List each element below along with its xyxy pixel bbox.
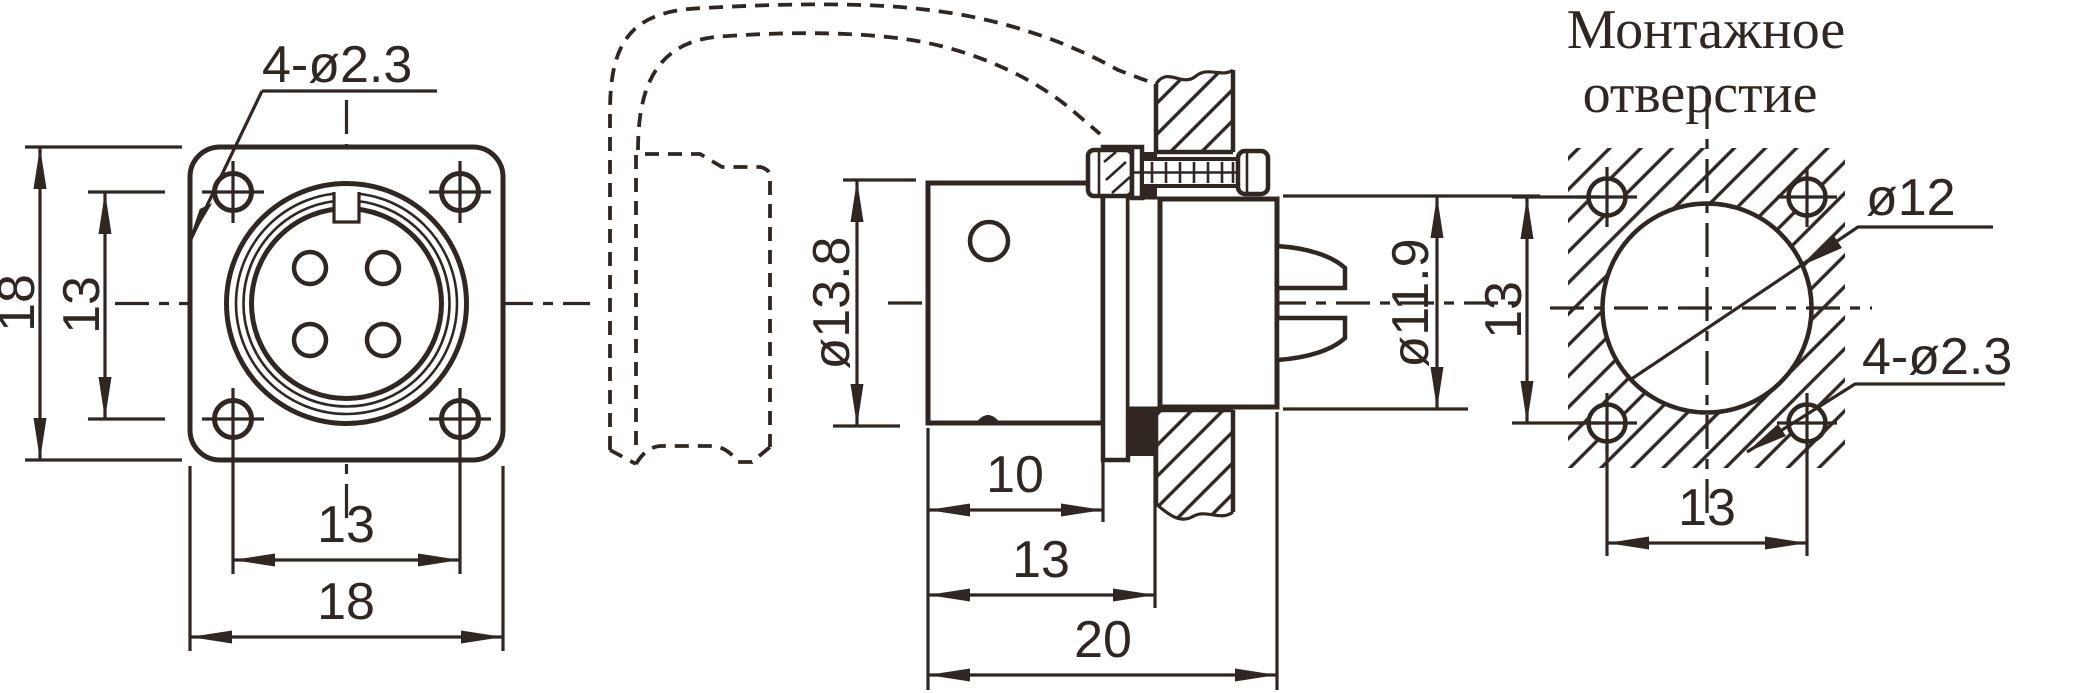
side-rear-body: [1160, 199, 1277, 407]
dim-label: 13: [317, 496, 375, 554]
front-holes-callout-label: 4-ø2.3: [262, 36, 412, 94]
dim-label: 20: [1074, 611, 1132, 669]
panel-hole-callout-label: ø12: [1866, 169, 1956, 227]
dim-label: 10: [986, 446, 1044, 504]
front-pin-1: [294, 252, 326, 284]
dim-label: 13: [1475, 281, 1533, 339]
side-finger-lower: [1277, 318, 1345, 360]
side-vent-hole: [970, 222, 1008, 260]
panel-section-bottom: [1156, 410, 1233, 519]
dim-label: 18: [0, 274, 46, 332]
dim-label: 13: [1012, 531, 1070, 589]
dim-label: ø13.8: [803, 237, 861, 370]
front-pin-4: [367, 324, 399, 356]
dim-label: 13: [53, 276, 111, 334]
side-finger-upper: [1277, 246, 1345, 288]
mounting-hole-view: Монтажное отверстие 13: [1475, 0, 2012, 556]
dim-label: ø11.9: [1382, 238, 1440, 367]
front-pin-2: [367, 252, 399, 284]
mounting-view-title-line1: Монтажное: [1567, 0, 1846, 61]
drawing-canvas: 18 13 13 18 4-ø2.3: [0, 0, 2086, 693]
dim-label: 13: [1678, 479, 1736, 537]
front-keyway-notch: [334, 191, 359, 222]
side-barrel: [1128, 198, 1162, 408]
side-view: ø13.8 ø11.9 10 13 20: [610, 4, 1540, 690]
panel-section-top: [1156, 70, 1233, 152]
mounting-view-title-line2: отверстие: [1583, 63, 1818, 125]
front-pin-3: [294, 324, 326, 356]
connector-drawing-page: 18 13 13 18 4-ø2.3: [0, 0, 2086, 693]
screw-nut: [1238, 151, 1268, 194]
corner-holes-callout-label: 4-ø2.3: [1862, 328, 2012, 386]
panel-screw: [1088, 147, 1268, 198]
dim-front-hole-spacing-v: 13: [53, 192, 165, 419]
side-front-body: [928, 183, 1103, 423]
front-view: 18 13 13 18 4-ø2.3: [0, 36, 590, 651]
dim-label: 18: [317, 573, 375, 631]
